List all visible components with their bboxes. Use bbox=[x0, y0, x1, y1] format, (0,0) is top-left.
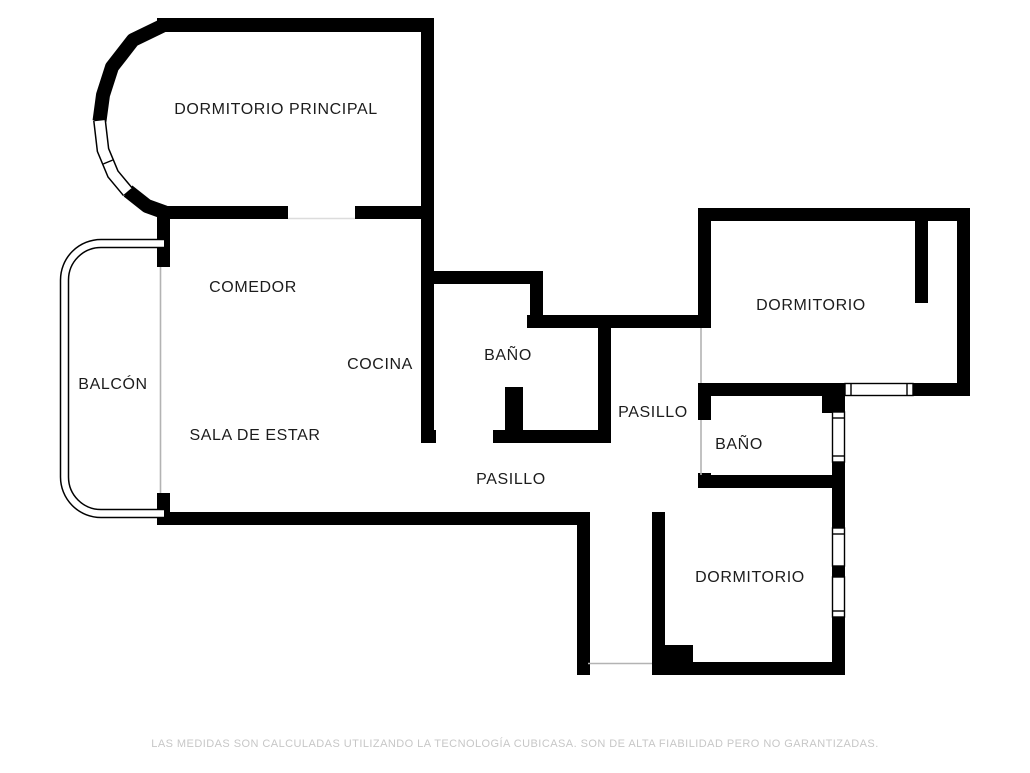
wall-segment bbox=[355, 206, 434, 219]
wall-segment bbox=[157, 512, 590, 525]
wall-segment bbox=[698, 475, 832, 488]
room-label-dormitorio-2: DORMITORIO bbox=[756, 297, 866, 315]
wall-segment bbox=[832, 566, 845, 577]
wall-segment bbox=[915, 221, 928, 303]
wall-segment bbox=[822, 396, 845, 413]
window-symbol bbox=[833, 528, 845, 566]
room-label-bano-1: BAÑO bbox=[484, 347, 532, 365]
floorplan-svg bbox=[0, 0, 1030, 773]
wall-segment bbox=[527, 315, 711, 328]
wall-segment bbox=[157, 206, 288, 219]
wall-segment bbox=[421, 271, 543, 284]
wall-segment bbox=[577, 512, 590, 675]
wall-segment bbox=[128, 191, 165, 213]
wall-segment bbox=[157, 18, 434, 32]
wall-segment bbox=[598, 328, 611, 443]
room-label-dormitorio-principal: DORMITORIO PRINCIPAL bbox=[174, 101, 377, 119]
floorplan-page: DORMITORIO PRINCIPAL COMEDOR COCINA BAÑO… bbox=[0, 0, 1030, 773]
wall-segment bbox=[505, 387, 523, 435]
wall-segment bbox=[957, 208, 970, 396]
wall-segment bbox=[652, 512, 665, 645]
window-symbol bbox=[100, 120, 129, 192]
room-label-pasillo-1: PASILLO bbox=[618, 404, 688, 422]
wall-segment bbox=[698, 383, 845, 396]
window-symbol bbox=[845, 384, 913, 396]
room-label-balcon: BALCÓN bbox=[78, 376, 147, 394]
disclaimer-text: LAS MEDIDAS SON CALCULADAS UTILIZANDO LA… bbox=[0, 738, 1030, 750]
wall-segment bbox=[698, 208, 711, 328]
wall-segment bbox=[832, 462, 845, 528]
wall-segment bbox=[421, 18, 434, 443]
wall-segment bbox=[698, 208, 970, 221]
wall-segment bbox=[100, 25, 165, 121]
window-symbol bbox=[833, 577, 845, 617]
wall-segment bbox=[421, 430, 436, 443]
wall-segment bbox=[913, 383, 970, 396]
room-label-pasillo-2: PASILLO bbox=[476, 471, 546, 489]
room-label-sala-de-estar: SALA DE ESTAR bbox=[189, 427, 320, 445]
wall-segment bbox=[652, 662, 843, 675]
room-label-dormitorio-3: DORMITORIO bbox=[695, 569, 805, 587]
room-label-bano-2: BAÑO bbox=[715, 436, 763, 454]
room-label-comedor: COMEDOR bbox=[209, 279, 297, 297]
room-label-cocina: COCINA bbox=[347, 356, 413, 374]
window-symbol bbox=[833, 412, 845, 462]
bay-window bbox=[95, 25, 166, 213]
